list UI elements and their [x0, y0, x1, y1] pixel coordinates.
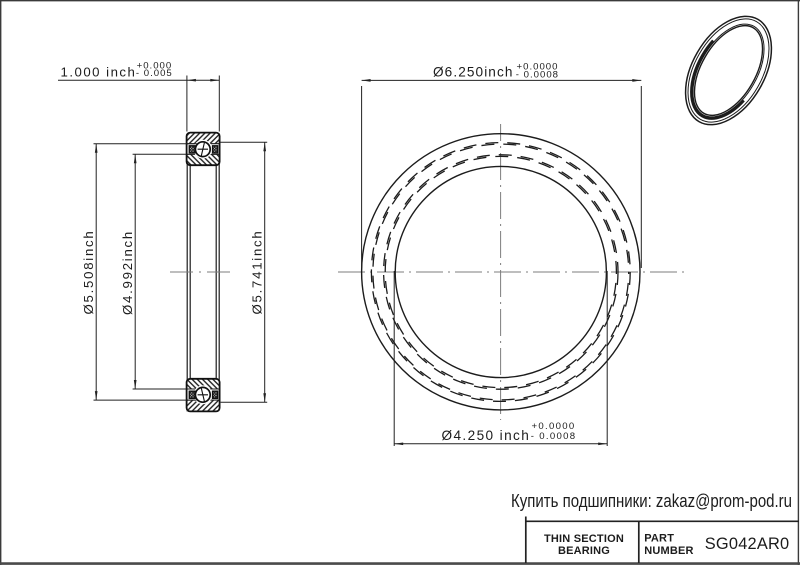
svg-text:PART: PART — [644, 533, 674, 545]
svg-text:- 0.0008: - 0.0008 — [531, 431, 577, 442]
svg-text:Ø6.250inch: Ø6.250inch — [433, 65, 514, 80]
svg-text:1.000 inch: 1.000 inch — [61, 65, 137, 80]
svg-text:- 0.0008: - 0.0008 — [516, 70, 559, 81]
svg-text:- 0.005: - 0.005 — [136, 68, 173, 79]
svg-text:Ø5.508inch: Ø5.508inch — [81, 230, 96, 315]
svg-text:BEARING: BEARING — [558, 545, 610, 557]
svg-text:Ø5.741inch: Ø5.741inch — [250, 230, 265, 315]
svg-text:Купить подшипники: zakaz@prom-: Купить подшипники: zakaz@prom-pod.ru — [511, 491, 792, 511]
svg-text:Ø4.250 inch: Ø4.250 inch — [442, 428, 531, 443]
svg-text:SG042AR0: SG042AR0 — [705, 535, 790, 553]
svg-text:NUMBER: NUMBER — [644, 545, 693, 557]
svg-text:THIN SECTION: THIN SECTION — [544, 533, 624, 545]
svg-text:Ø4.992inch: Ø4.992inch — [120, 230, 135, 315]
